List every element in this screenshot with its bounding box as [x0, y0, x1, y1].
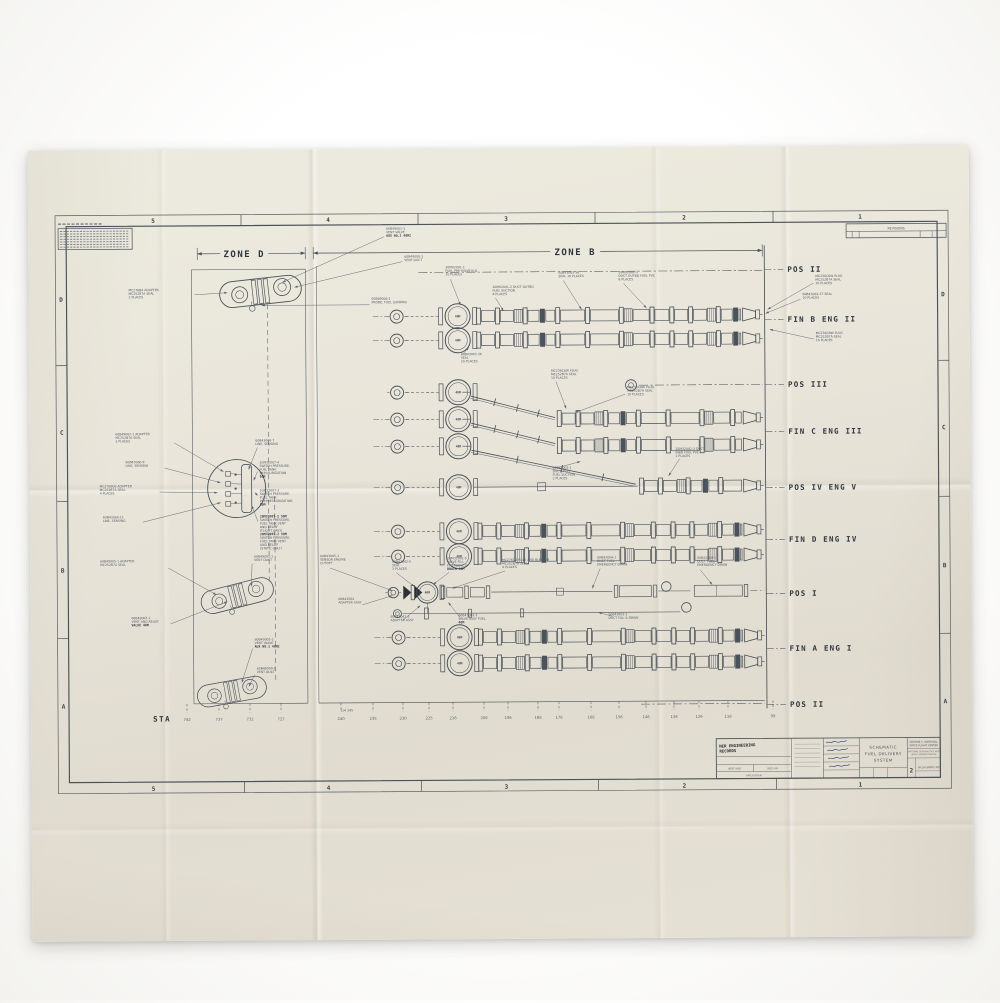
assembly-outline — [199, 575, 276, 616]
flange-stack — [223, 682, 230, 703]
duct-section — [736, 439, 742, 450]
valve-label: 40M — [456, 485, 462, 489]
duct-section — [740, 549, 742, 560]
circle — [211, 692, 219, 700]
leader-arrowhead — [579, 306, 583, 310]
signature-scribble — [829, 764, 850, 767]
duct-section — [528, 334, 539, 345]
station-number: 186 — [534, 715, 542, 720]
stamp-mark — [403, 586, 411, 600]
duct-section — [675, 333, 688, 344]
end-flange — [758, 631, 762, 640]
seal-joint — [733, 308, 738, 322]
leader-arrowhead — [224, 292, 227, 294]
seal-joint — [541, 524, 546, 538]
valve-flange — [473, 438, 477, 455]
callouts: 60B49001-1VENT VALVEAUX NO.2 40M260B4900… — [98, 224, 845, 688]
duct-section — [548, 631, 557, 642]
circle — [215, 597, 224, 606]
flange — [700, 410, 704, 426]
leader-line — [330, 568, 392, 591]
flange — [716, 307, 720, 323]
duct-section — [483, 632, 496, 643]
callout: MC236C8W PLUGMC252B7A SEAL10 PLACES — [769, 328, 843, 343]
signature-scribble — [828, 756, 849, 759]
duct-section — [739, 309, 741, 320]
flange — [671, 522, 675, 538]
callout-text: 60B43002-1VALVE ASSY FUEL40M — [458, 613, 485, 624]
flange — [689, 307, 693, 323]
valve-label: 40M — [455, 338, 461, 342]
callout: 20M32001-5VALVE FILLEMERGENCYDRAIN 40M — [432, 556, 466, 585]
position-label: FIN D ENG IV — [789, 535, 858, 544]
duct-section — [502, 657, 515, 668]
station-number: 116 — [724, 714, 732, 719]
line — [846, 231, 946, 232]
flange-stack — [233, 585, 242, 607]
pipe-ring — [396, 635, 402, 641]
leader-arrowhead — [591, 585, 594, 589]
zone-d-label: ZONE D — [223, 250, 265, 260]
callout-text: MC236C8W PLUGMC252B7A SEAL10 PLACES — [627, 385, 655, 396]
pipe-ring — [395, 485, 401, 491]
flange — [486, 586, 490, 599]
line — [471, 423, 555, 445]
callout-text: 60B43005-1SENSOR ENGINECUTOFF — [320, 554, 346, 565]
duct-section — [677, 656, 690, 667]
flange — [658, 478, 662, 494]
switch-port — [226, 482, 231, 487]
flange — [621, 547, 625, 563]
duct-section — [714, 439, 730, 450]
callout-text: 60B43004ADAPTER ASSY — [338, 597, 361, 605]
leader-arrowhead — [217, 502, 221, 505]
zone-col-number: 1 — [858, 214, 862, 221]
duct-section — [671, 412, 699, 423]
duct-section — [530, 657, 541, 668]
flange — [525, 629, 529, 645]
seal-joint — [734, 523, 739, 537]
duct-section — [657, 656, 671, 667]
end-flange — [758, 657, 762, 666]
callout-text: 20M02001-3DUCT OUTBD FUEL PVC8 PLACES — [618, 270, 655, 281]
leader-arrowhead — [248, 466, 251, 470]
leader-arrowhead — [501, 308, 505, 312]
station-number: 737 — [215, 717, 223, 722]
thin-duct — [491, 591, 612, 592]
duct-section — [530, 631, 541, 642]
flange — [495, 308, 499, 324]
org-sub: SPACE ADMINISTRATION — [911, 753, 937, 756]
duct-row: 40M — [375, 649, 765, 676]
flange-stack — [233, 680, 240, 701]
callout: 60B43063-36SEAL20 PLACES — [461, 346, 482, 363]
leader-line — [282, 237, 384, 283]
flange — [621, 628, 625, 644]
duct-section — [592, 657, 620, 668]
station-number: 732 — [246, 717, 254, 722]
callout: 60B43002-1DUCT ASSYFUEL SUCTION2 PLACES — [552, 460, 580, 480]
end-flange — [757, 481, 761, 490]
callout: MC236C6W PLUGMC252B7A SEAL10 PLACES — [551, 369, 579, 410]
duct-section — [739, 333, 741, 344]
leader-line — [575, 394, 625, 412]
callout-text: 60B43060-11LINE, SENSING — [103, 515, 126, 523]
leader-arrowhead — [253, 477, 256, 481]
valve-label: 40M — [456, 444, 462, 448]
leader-arrowhead — [769, 328, 773, 331]
pipe-ring — [394, 417, 400, 423]
zone-b-label: ZONE B — [554, 248, 596, 258]
flange — [744, 584, 748, 596]
flange — [731, 437, 735, 453]
pipe-ring — [391, 386, 404, 399]
duct-section — [563, 657, 587, 668]
pipe-ring — [392, 657, 405, 670]
pipe-ring — [395, 529, 401, 535]
pipe-ring — [391, 590, 396, 595]
flange — [586, 331, 590, 347]
flange — [636, 410, 640, 426]
blueprint-sheet: ZONE D ZONE B STA REVISIONS 5544332211DD… — [28, 145, 974, 942]
flange — [497, 548, 501, 564]
pos1-cluster: 40M — [385, 580, 764, 619]
flange — [640, 478, 644, 494]
callout-text: 60B43060-9LINE, SENSING — [125, 460, 148, 468]
valve-flange — [474, 548, 478, 565]
callout: 60B49003-1VENT AND RELIEFVALVE 40M — [131, 601, 228, 628]
flange — [672, 654, 676, 670]
vent-assembly — [218, 274, 303, 315]
vent-assembly — [199, 575, 278, 621]
circle — [231, 286, 249, 304]
station-number: 742 — [183, 717, 191, 722]
duct-section — [581, 440, 594, 451]
duct-section — [546, 334, 555, 345]
manifold — [242, 465, 252, 513]
duct-section — [561, 310, 585, 321]
leader-arrowhead — [668, 473, 672, 477]
callout: MC236C8W PLUGMC252B7A SEAL10 PLACES — [575, 385, 655, 414]
station-number: 126 — [695, 714, 703, 719]
flange — [621, 522, 625, 538]
pipe-ring — [396, 661, 402, 667]
circle — [251, 584, 260, 593]
leader-arrowhead — [765, 311, 769, 314]
records-stamp: NER ENGINEERINGRECORDS — [719, 742, 756, 753]
callout-text: 20M32007-3SWITCH PRESSURE,FUEL TANKPREPR… — [260, 488, 294, 506]
valve-flange — [475, 629, 479, 646]
port-dot — [235, 502, 237, 504]
vent-assembly — [196, 675, 269, 714]
callout-text: MC276B06 ADAPTERMC252B7A SEAL4 PLACES — [100, 484, 133, 495]
leader-arrowhead — [577, 460, 581, 463]
duct-section — [562, 525, 586, 536]
end-flange — [756, 440, 760, 449]
duct-section — [633, 310, 649, 321]
flange — [604, 437, 608, 453]
line — [231, 484, 242, 485]
callout-text: 60B49000-1VENT DUCT — [257, 666, 276, 674]
drain-hook — [661, 582, 671, 592]
flange — [557, 523, 561, 539]
flange — [690, 522, 694, 538]
leader-line — [174, 443, 223, 472]
switch-port — [226, 492, 231, 497]
leader-line — [770, 329, 814, 339]
zone-col-number: 3 — [504, 216, 508, 223]
circle — [247, 580, 266, 599]
station-number: 99 — [771, 713, 776, 718]
centerline — [639, 384, 763, 385]
drawing-title: FUEL DELIVERY — [865, 751, 902, 756]
flange — [497, 629, 501, 645]
callout: 60B43063-37 SEAL10 PLACES — [765, 292, 833, 314]
zone-col-number: 4 — [327, 785, 331, 792]
flange — [672, 628, 676, 644]
duct-row — [373, 436, 763, 454]
line — [305, 269, 308, 703]
flange-stack — [228, 681, 235, 702]
flange — [576, 411, 580, 427]
drawing-title: SYSTEM — [874, 758, 893, 763]
callout-text: 60B43060-7LINE, SENSING — [255, 438, 278, 446]
flange — [587, 547, 591, 563]
callout: 60B43005-1SENSOR ENGINECUTOFF — [320, 554, 393, 592]
org-sub: NATIONAL AERONAUTICS AND — [908, 750, 940, 753]
duct-section — [645, 481, 658, 492]
callout-text: MC236C6W PLUGMC252B7A SEAL10 PLACES — [815, 274, 843, 285]
leader-line — [160, 492, 218, 493]
callout: MC276B4 ADAPTERMC252B7A SEAL2 PLACES — [128, 288, 227, 300]
duct-section — [741, 630, 743, 641]
duct-section — [724, 480, 742, 491]
duct-section — [695, 630, 708, 641]
seal-joint — [703, 479, 708, 493]
valve-flange — [473, 308, 477, 325]
zone-b-right-boundary — [764, 245, 767, 708]
flange — [686, 478, 690, 494]
duct-section — [655, 309, 669, 320]
end-cone — [743, 332, 756, 345]
callout: 60B43004ADAPTER ASSY — [338, 595, 392, 605]
zone-row-letter: D — [59, 297, 63, 304]
arrowhead — [313, 251, 318, 254]
pipe-ring — [390, 310, 403, 323]
arrowhead — [301, 251, 306, 254]
leader-line — [248, 447, 257, 469]
duct-section — [562, 440, 575, 451]
duct-rows: 40M40M40M40M40M40M40M40M40M40M — [373, 302, 765, 676]
duct-section — [592, 525, 620, 536]
seal-joint — [542, 630, 547, 644]
duct-section — [695, 524, 708, 535]
callout: 20M32007-4SWITCH PRESSURE,FUEL TANKPRESS… — [252, 460, 290, 481]
seal-joint — [540, 333, 545, 347]
flange — [636, 437, 640, 453]
station-number: 216 — [449, 715, 457, 720]
callout-text: MC276D4 PLUG AND BLEEDERMC252B7A SEAL4 P… — [502, 558, 550, 569]
callout-text: 20M32001-5VALVE FILLEMERGENCYDRAIN 40M — [447, 556, 467, 571]
seal-joint — [540, 309, 545, 323]
callout-text: 20M02001-2 DUCT OUTBDFUEL SUCTION8 PLACE… — [492, 285, 534, 296]
pipe-ring — [394, 444, 400, 450]
size-letter: 2 — [910, 767, 914, 774]
callout-text: 60B43063-37 SEAL10 PLACES — [802, 292, 832, 300]
diagonal-duct — [471, 396, 556, 421]
flange — [523, 308, 527, 324]
station-number: 206 — [480, 715, 488, 720]
zone-row-letter: B — [943, 562, 947, 569]
callout: 20M02001-2 DUCT OUTBDFUEL SUCTION8 PLACE… — [492, 285, 534, 312]
line — [194, 703, 308, 704]
duct-section — [581, 413, 594, 424]
end-cone — [743, 438, 756, 451]
valve-label: 40M — [456, 417, 462, 421]
callout: 60B43060-11LINE, SENSING — [103, 502, 221, 523]
flange — [441, 586, 445, 599]
duct-stub: 40M — [387, 434, 477, 460]
duct-section — [626, 413, 635, 424]
duct-section — [722, 524, 733, 535]
duct-section — [723, 630, 734, 641]
duct-section — [635, 631, 651, 642]
callout: 20M32002-3 DUCTINBD FUEL PVC2 PLACES — [667, 447, 704, 477]
pipe-ring — [390, 334, 403, 347]
seal-joint — [620, 411, 625, 425]
valve-label: 40M — [455, 314, 461, 318]
flange — [587, 628, 591, 644]
duct-section — [619, 586, 651, 597]
duct-section — [627, 440, 636, 451]
duct-section — [502, 525, 515, 536]
diagonal-duct — [471, 423, 556, 447]
pipe-ring — [391, 481, 404, 494]
zone-row-letter: C — [60, 430, 64, 437]
position-label: POS II — [790, 700, 824, 709]
valve-flange — [441, 629, 445, 646]
flange — [670, 331, 674, 347]
flange — [478, 523, 482, 539]
flange — [556, 308, 560, 324]
valve-flange — [473, 411, 477, 428]
flange — [604, 410, 608, 426]
circle — [235, 290, 244, 299]
flange — [556, 332, 560, 348]
leader-line — [452, 571, 505, 588]
flange — [716, 331, 720, 347]
zone-col-number: 4 — [326, 217, 330, 224]
duct-section — [696, 656, 709, 667]
duct-section — [635, 657, 651, 668]
duct-section — [675, 309, 688, 320]
flange — [650, 307, 654, 323]
callout: 60B49005-2VENT VALVEAUX NO.1 40M2 — [241, 637, 280, 683]
duct-section — [502, 631, 515, 642]
leader-arrowhead — [250, 583, 252, 586]
duct-section — [633, 334, 649, 345]
flange — [731, 410, 735, 426]
station-number: 225 — [425, 715, 433, 720]
duct-section — [635, 550, 651, 561]
duct-section — [741, 656, 743, 667]
leader-line — [450, 279, 460, 305]
callout-text: 60B49001-1VENT VALVEAUX NO.2 40M2 — [386, 227, 411, 238]
org-name: SPACE FLIGHT CENTER — [909, 743, 938, 747]
callout-text: 60B43042-5SEAL3 PLACES — [392, 560, 411, 571]
flange — [690, 547, 694, 563]
application-label: APPLICATION — [746, 774, 762, 777]
valve-label: 40M — [457, 635, 463, 639]
flange — [621, 654, 625, 670]
centerline — [641, 703, 765, 704]
flange — [718, 547, 722, 563]
station-number: 230 — [399, 716, 407, 721]
duct-section — [546, 310, 555, 321]
duct-section — [484, 658, 497, 669]
callout: 20M32007-3SWITCH PRESSURE,FUEL TANKPREPR… — [254, 488, 293, 506]
zone-row-letter: B — [61, 568, 65, 575]
quarter-station-label: 1/4 345 — [341, 708, 353, 712]
leader-arrowhead — [598, 611, 602, 614]
callout-text: MC236C6W PLUGMC252B7A SEAL10 PLACES — [551, 369, 579, 380]
flange-stack — [257, 279, 264, 303]
switch-port — [226, 472, 231, 477]
zone-col-number: 2 — [682, 215, 686, 222]
pipe-ring — [391, 413, 404, 426]
circle — [242, 678, 259, 695]
station-number: 176 — [555, 715, 563, 720]
station-number: 156 — [615, 714, 623, 719]
flange — [585, 307, 589, 323]
duct-stub: 40M — [387, 407, 477, 433]
arrowhead — [197, 252, 202, 255]
zone-col-number: 1 — [859, 782, 863, 789]
drain-hook — [682, 603, 692, 613]
callout-text: 60B43004-1DUCT FUELEMERGENCY DRAIN — [597, 555, 628, 566]
zone-col-number: 5 — [151, 218, 155, 225]
seal-joint — [735, 629, 740, 643]
line — [231, 606, 232, 609]
position-label: FIN A ENG I — [790, 644, 853, 653]
circle — [277, 282, 286, 291]
callout-text: 60B43063-36SEAL20 PLACES — [461, 352, 482, 363]
zone-col-number: 3 — [505, 784, 509, 791]
sta-label: STA — [153, 715, 171, 724]
flange — [651, 547, 655, 563]
duct-section — [740, 524, 742, 535]
seal-joint — [735, 655, 740, 669]
duct-section — [677, 630, 690, 641]
arrowhead — [758, 249, 763, 252]
flange — [479, 629, 483, 645]
station-number: 136 — [670, 714, 678, 719]
valve-flange — [473, 384, 477, 401]
duct-section — [562, 413, 575, 424]
duct-row: 40M — [374, 623, 764, 650]
duct-section — [634, 525, 650, 536]
duct-section — [447, 588, 463, 598]
position-labels: POS IIFIN B ENG IIPOS IIIFIN C ENG IIIPO… — [764, 264, 864, 709]
flange — [478, 548, 482, 564]
leader-line — [556, 382, 566, 409]
flange — [558, 629, 562, 645]
leader-arrowhead — [564, 405, 567, 409]
probe-port — [249, 305, 255, 311]
flange — [477, 308, 481, 324]
leader-arrowhead — [214, 492, 217, 494]
zone-row-letter: A — [944, 698, 948, 705]
